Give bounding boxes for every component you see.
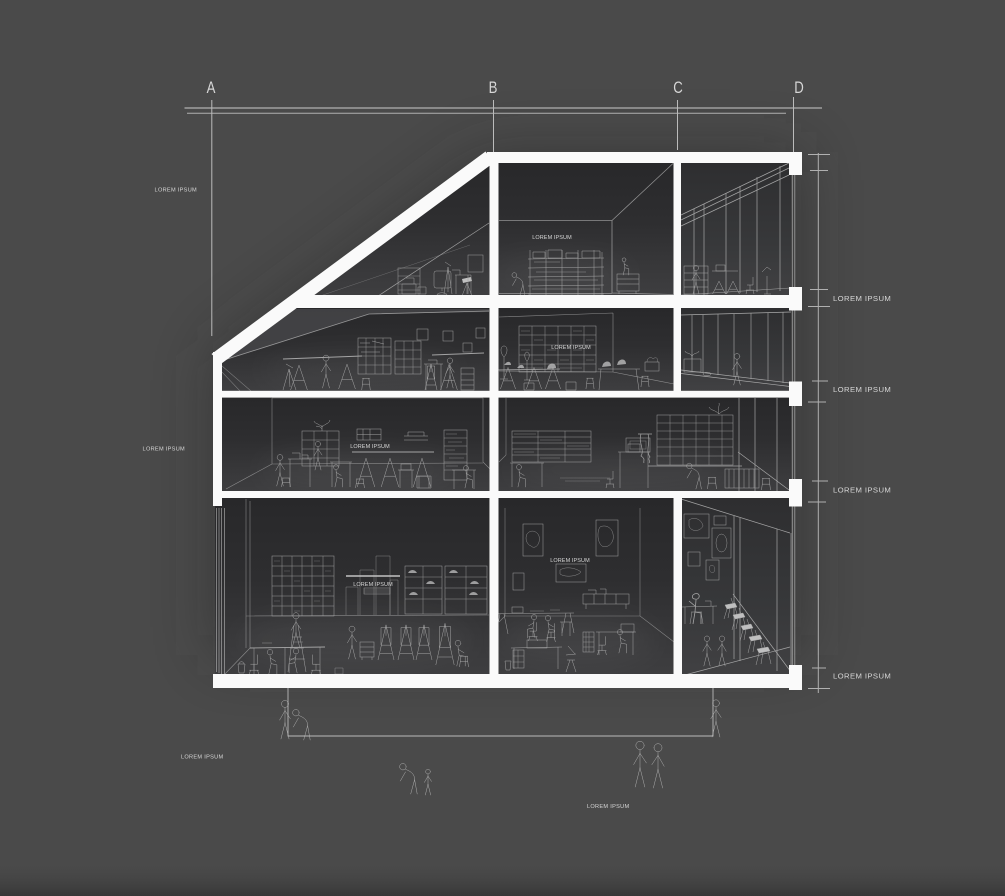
svg-text:LOREM IPSUM: LOREM IPSUM [833, 385, 891, 394]
svg-text:A: A [207, 79, 216, 98]
svg-text:LOREM IPSUM: LOREM IPSUM [833, 672, 891, 681]
svg-text:LOREM IPSUM: LOREM IPSUM [551, 345, 591, 351]
svg-text:LOREM IPSUM: LOREM IPSUM [350, 444, 390, 450]
svg-text:LOREM IPSUM: LOREM IPSUM [532, 235, 572, 241]
svg-text:D: D [794, 79, 804, 98]
svg-text:LOREM IPSUM: LOREM IPSUM [353, 582, 393, 588]
svg-text:LOREM IPSUM: LOREM IPSUM [550, 558, 590, 564]
svg-text:LOREM IPSUM: LOREM IPSUM [833, 486, 891, 495]
svg-text:LOREM IPSUM: LOREM IPSUM [181, 755, 224, 761]
svg-text:C: C [673, 79, 683, 98]
svg-text:LOREM IPSUM: LOREM IPSUM [587, 804, 630, 810]
svg-text:LOREM IPSUM: LOREM IPSUM [143, 447, 186, 453]
svg-text:LOREM IPSUM: LOREM IPSUM [155, 188, 198, 194]
svg-text:LOREM IPSUM: LOREM IPSUM [833, 294, 891, 303]
svg-text:B: B [489, 79, 498, 98]
